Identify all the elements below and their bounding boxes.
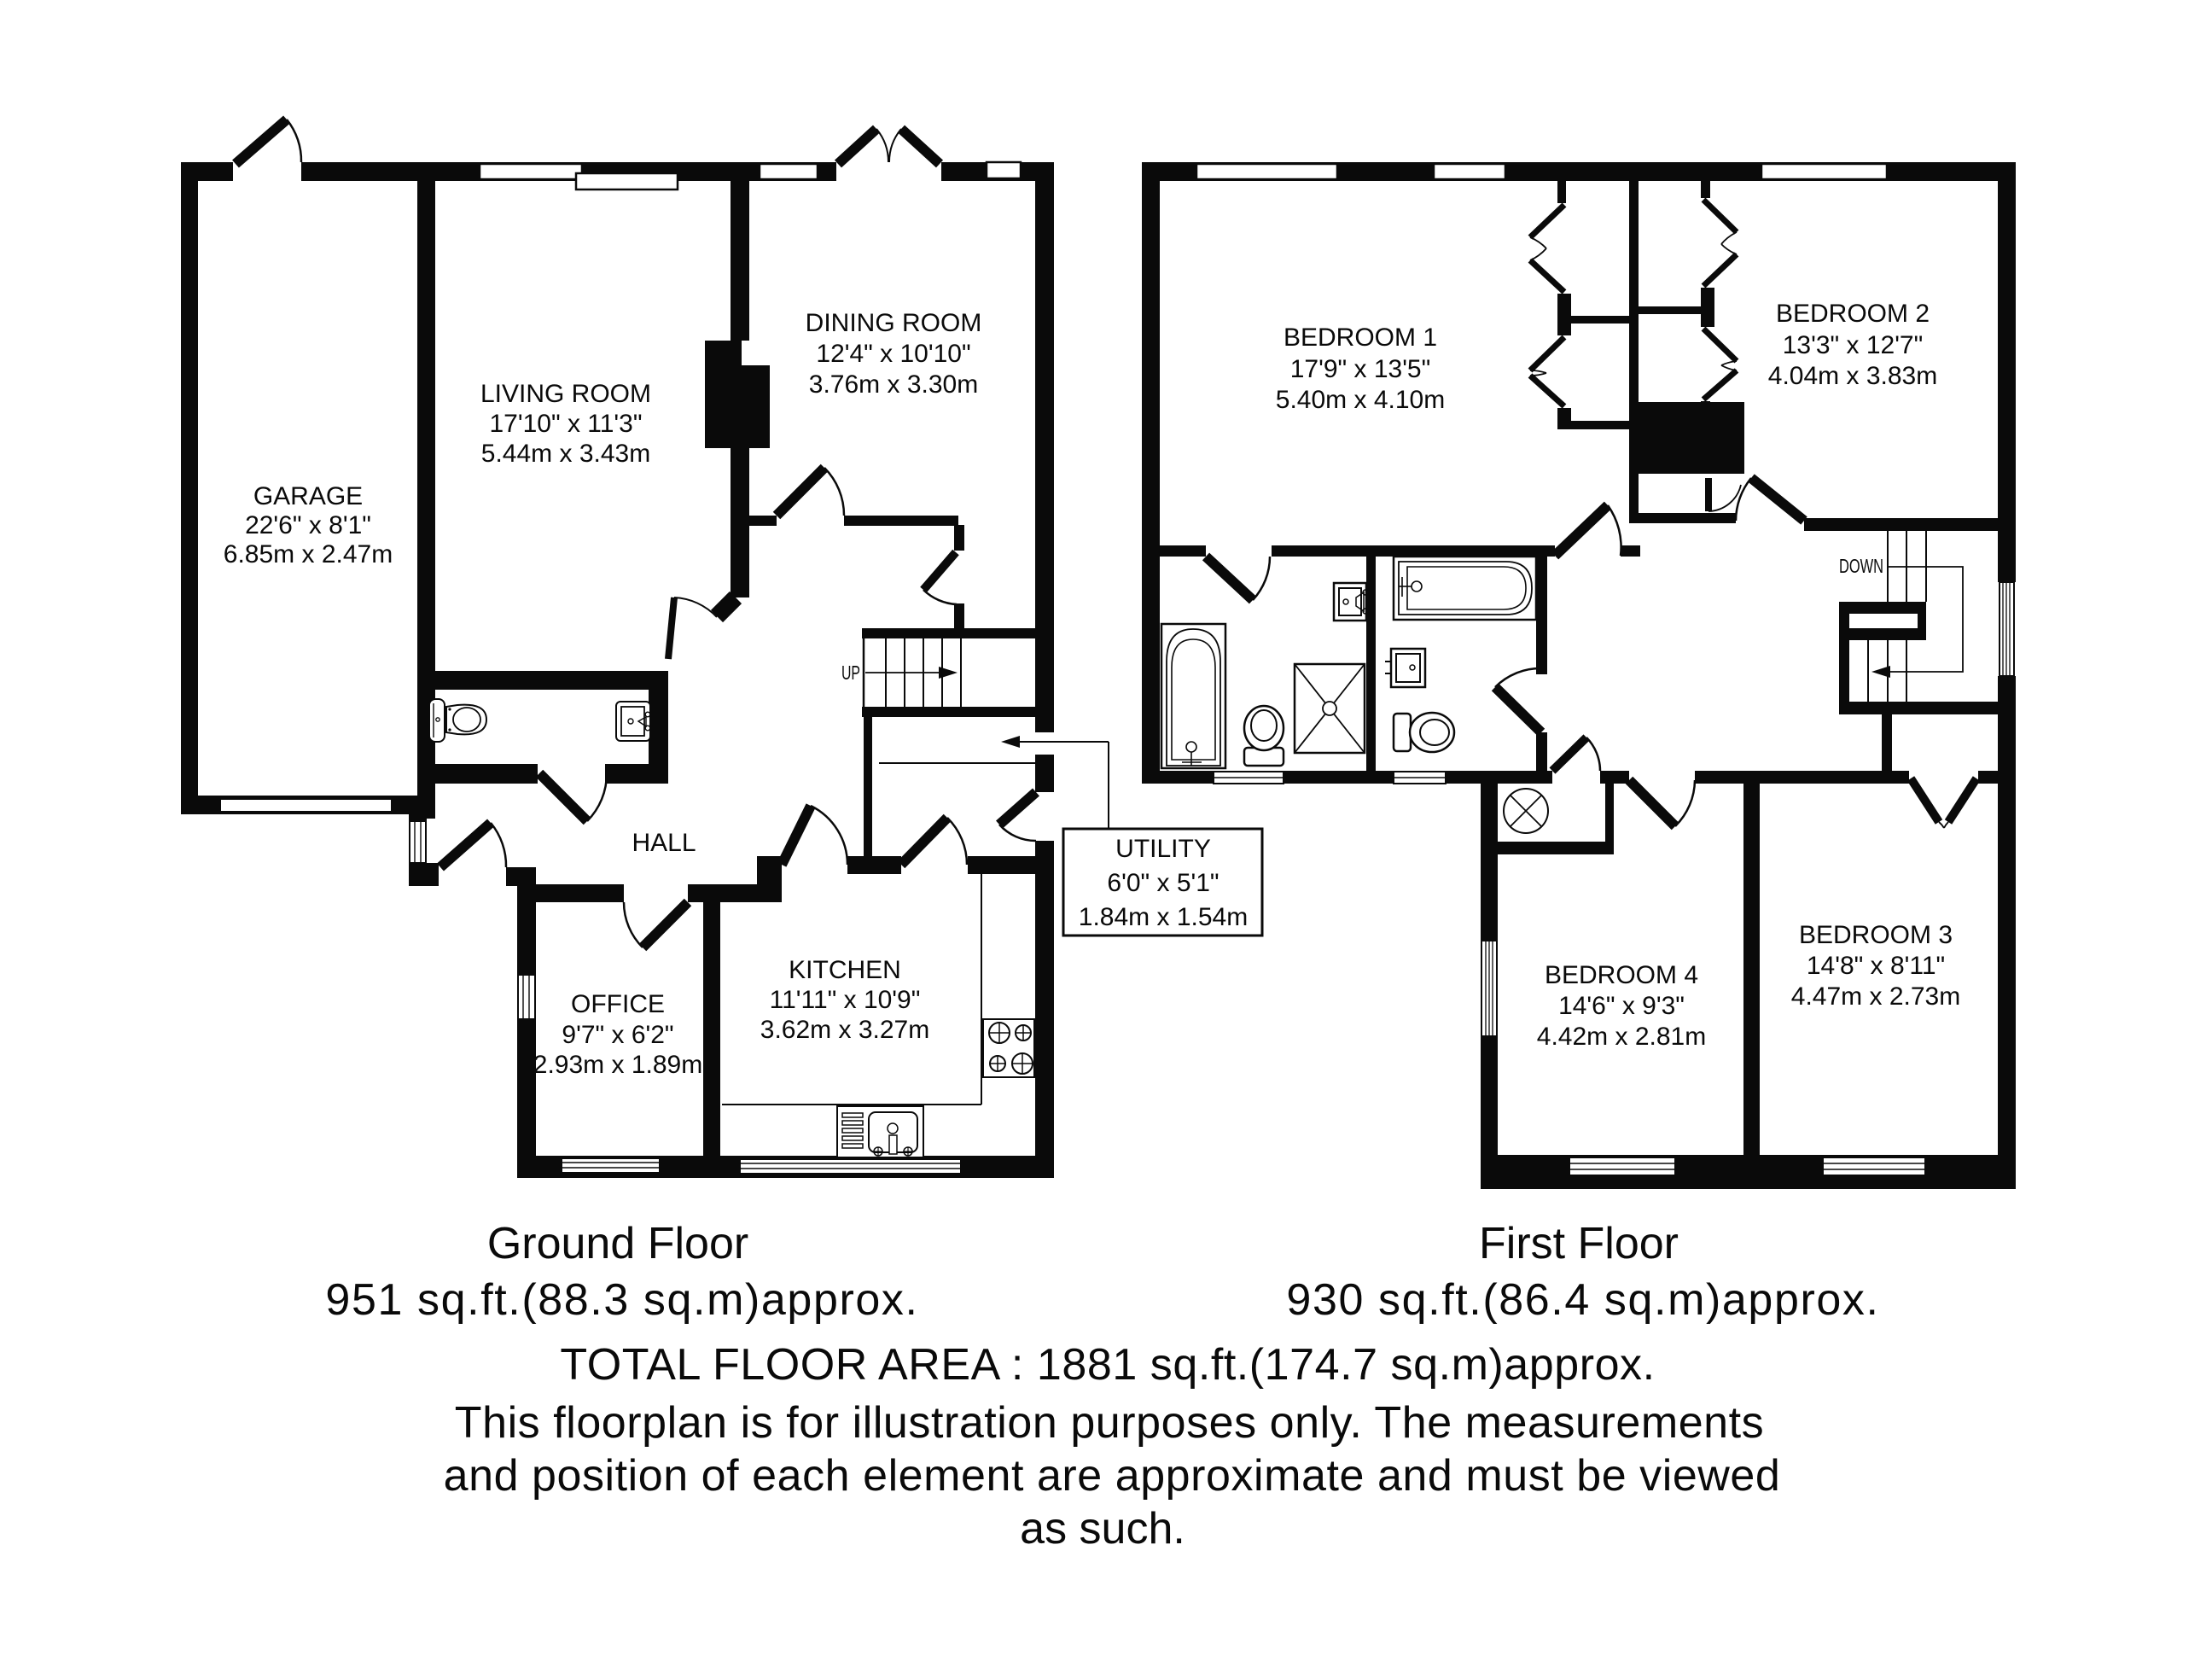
svg-text:14'6" x 9'3": 14'6" x 9'3" [1558,992,1685,1020]
svg-text:2.93m x 1.89m: 2.93m x 1.89m [533,1051,702,1079]
svg-text:11'11" x 10'9": 11'11" x 10'9" [770,986,921,1014]
svg-text:17'9" x 13'5": 17'9" x 13'5" [1290,355,1431,383]
svg-text:OFFICE: OFFICE [571,990,665,1018]
svg-text:TOTAL FLOOR AREA : 1881 sq.ft.: TOTAL FLOOR AREA : 1881 sq.ft.(174.7 sq.… [560,1340,1655,1390]
svg-text:UTILITY: UTILITY [1115,835,1211,863]
svg-text:22'6" x 8'1": 22'6" x 8'1" [245,511,371,539]
svg-text:17'10" x 11'3": 17'10" x 11'3" [490,410,643,438]
svg-text:BEDROOM 4: BEDROOM 4 [1545,961,1698,989]
svg-text:DINING ROOM: DINING ROOM [806,309,982,337]
svg-text:as such.: as such. [1020,1504,1185,1553]
svg-text:13'3" x 12'7": 13'3" x 12'7" [1783,331,1924,359]
svg-text:4.47m x 2.73m: 4.47m x 2.73m [1791,982,1960,1011]
svg-text:3.76m x 3.30m: 3.76m x 3.30m [809,370,978,399]
svg-text:5.44m x 3.43m: 5.44m x 3.43m [481,440,650,468]
svg-text:6.85m x 2.47m: 6.85m x 2.47m [224,540,393,568]
svg-text:14'8" x 8'11": 14'8" x 8'11" [1807,952,1945,980]
svg-text:Ground Floor: Ground Floor [487,1219,748,1268]
svg-text:BEDROOM 3: BEDROOM 3 [1799,921,1953,949]
svg-text:4.42m x 2.81m: 4.42m x 2.81m [1537,1023,1706,1051]
svg-text:BEDROOM 2: BEDROOM 2 [1776,300,1930,328]
svg-text:930 sq.ft.(86.4 sq.m)approx.: 930 sq.ft.(86.4 sq.m)approx. [1286,1275,1879,1325]
svg-text:1.84m x 1.54m: 1.84m x 1.54m [1079,903,1248,931]
svg-text:This floorplan is for illustra: This floorplan is for illustration purpo… [455,1398,1764,1448]
svg-text:KITCHEN: KITCHEN [789,956,901,984]
svg-text:GARAGE: GARAGE [253,482,363,510]
svg-text:6'0" x 5'1": 6'0" x 5'1" [1107,869,1219,897]
svg-text:LIVING ROOM: LIVING ROOM [480,380,651,408]
svg-text:DOWN: DOWN [1839,555,1883,577]
svg-text:3.62m x 3.27m: 3.62m x 3.27m [760,1016,929,1044]
svg-text:4.04m x 3.83m: 4.04m x 3.83m [1768,362,1937,390]
svg-text:UP: UP [841,662,860,684]
svg-text:951 sq.ft.(88.3 sq.m)approx.: 951 sq.ft.(88.3 sq.m)approx. [325,1275,918,1325]
svg-text:HALL: HALL [632,829,696,857]
svg-text:9'7" x 6'2": 9'7" x 6'2" [562,1021,673,1049]
svg-text:BEDROOM 1: BEDROOM 1 [1284,324,1437,352]
svg-text:First Floor: First Floor [1479,1219,1679,1268]
svg-text:and position of each element a: and position of each element are approxi… [444,1451,1781,1501]
svg-text:5.40m x 4.10m: 5.40m x 4.10m [1276,386,1445,414]
svg-text:12'4" x 10'10": 12'4" x 10'10" [816,340,970,368]
